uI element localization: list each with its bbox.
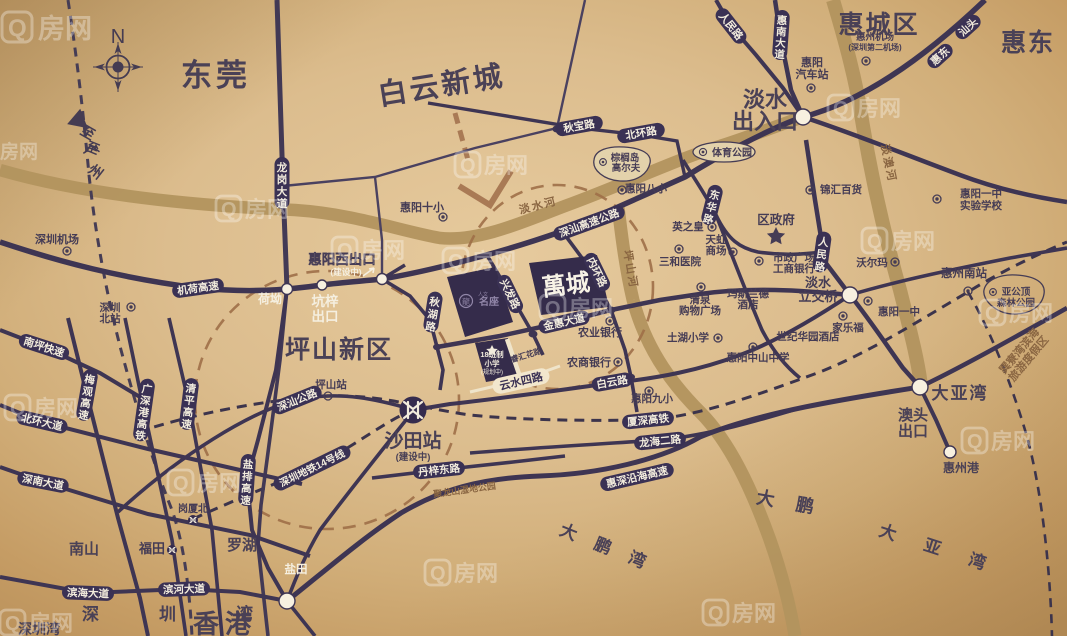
svg-text:汽车站: 汽车站 [796,67,829,81]
svg-text:房网: 房网 [991,429,1035,454]
svg-text:Q: Q [460,155,476,177]
svg-text:深圳湾: 深圳湾 [82,604,313,624]
svg-text:Q: Q [448,251,464,273]
svg-text:(深圳第二机场): (深圳第二机场) [848,42,902,52]
svg-text:工商银行: 工商银行 [773,262,815,275]
svg-text:Q: Q [10,398,26,420]
svg-text:酒店: 酒店 [738,298,759,311]
svg-text:实验学校: 实验学校 [960,199,1002,212]
svg-text:福田: 福田 [138,541,165,556]
svg-text:房网: 房网 [361,238,405,263]
svg-text:高尔夫: 高尔夫 [612,162,641,174]
svg-text:Q: Q [708,603,724,625]
svg-text:房网: 房网 [484,153,528,178]
svg-text:Q: Q [985,303,1001,325]
svg-text:惠阳中山中学: 惠阳中山中学 [727,351,790,364]
svg-text:锦汇百货: 锦汇百货 [820,183,862,196]
svg-text:农业银行: 农业银行 [577,325,622,339]
svg-text:Q: Q [545,298,561,320]
svg-text:英之皇: 英之皇 [671,220,704,233]
svg-text:惠阳: 惠阳 [801,55,823,69]
svg-text:购物广场: 购物广场 [679,304,721,317]
svg-text:Q: Q [867,231,883,253]
svg-text:北站: 北站 [100,312,121,325]
svg-text:惠阳九小: 惠阳九小 [631,392,673,405]
svg-text:坪山新区: 坪山新区 [285,335,393,364]
svg-text:房网: 房网 [732,601,776,626]
svg-text:惠阳十小: 惠阳十小 [400,200,444,214]
svg-text:区政府: 区政府 [757,212,795,227]
svg-text:房网: 房网 [0,140,38,163]
svg-text:澳头: 澳头 [898,406,928,424]
svg-text:世纪华园酒店: 世纪华园酒店 [777,330,840,343]
svg-text:土湖小学: 土湖小学 [667,331,709,344]
svg-text:大亚湾: 大亚湾 [932,383,989,403]
svg-text:岗厦北: 岗厦北 [178,502,208,515]
svg-text:盐田: 盐田 [285,562,308,576]
svg-text:Q: Q [8,15,27,42]
svg-text:Q: Q [221,199,237,221]
svg-text:小学: 小学 [485,358,500,368]
svg-text:沃尔玛: 沃尔玛 [856,256,888,269]
svg-text:淡水: 淡水 [805,275,832,290]
svg-text:惠阳一中: 惠阳一中 [878,305,920,318]
svg-text:(规划中): (规划中) [481,368,503,376]
svg-text:人文: 人文 [478,291,488,298]
svg-text:房网: 房网 [857,96,901,121]
svg-text:出入口: 出入口 [732,109,798,134]
svg-text:坑梓: 坑梓 [312,293,339,309]
svg-text:深圳机场: 深圳机场 [35,232,79,246]
svg-text:滨海大道: 滨海大道 [67,586,110,600]
svg-text:房网: 房网 [245,197,289,222]
svg-text:惠阳八小: 惠阳八小 [625,182,667,195]
svg-text:惠州港: 惠州港 [943,460,980,475]
svg-text:惠东: 惠东 [1001,28,1055,57]
svg-text:房网: 房网 [569,296,613,321]
svg-text:房网: 房网 [1009,301,1053,326]
svg-text:Q: Q [967,431,983,453]
svg-text:罗湖: 罗湖 [227,537,257,554]
svg-text:房网: 房网 [38,14,92,44]
svg-text:房网: 房网 [891,229,935,254]
svg-text:Q: Q [833,98,849,120]
svg-text:Q: Q [337,240,353,262]
svg-text:Q: Q [173,473,189,495]
svg-text:房网: 房网 [472,249,516,274]
svg-text:滨河大道: 滨河大道 [163,582,206,596]
svg-text:Q: Q [430,563,446,585]
svg-text:东莞: 东莞 [181,58,251,93]
svg-text:房网: 房网 [454,561,498,586]
svg-text:房网: 房网 [29,611,73,636]
svg-text:N: N [111,26,125,48]
svg-text:荷坳: 荷坳 [257,291,282,306]
svg-text:坪山站: 坪山站 [315,378,347,391]
svg-text:沙田站: 沙田站 [384,429,441,452]
svg-text:惠州南站: 惠州南站 [941,266,987,280]
svg-text:立交桥: 立交桥 [798,289,838,304]
svg-text:惠城区: 惠城区 [838,11,919,39]
svg-text:南山: 南山 [69,540,99,558]
svg-text:农商银行: 农商银行 [566,355,611,369]
svg-text:亚公顶: 亚公顶 [1002,287,1031,298]
svg-text:龍: 龍 [462,297,470,307]
svg-text:(建设中): (建设中) [330,267,361,277]
svg-text:商场: 商场 [706,244,727,257]
svg-text:出口: 出口 [898,422,928,440]
svg-text:惠阳一中: 惠阳一中 [960,187,1002,200]
svg-text:Q: Q [5,613,21,635]
svg-text:体育公园: 体育公园 [712,146,752,159]
svg-text:三和医院: 三和医院 [659,255,701,268]
svg-text:出口: 出口 [312,308,339,324]
svg-text:房网: 房网 [197,471,241,496]
svg-text:房网: 房网 [34,396,78,421]
svg-text:(建设中): (建设中) [396,451,431,463]
